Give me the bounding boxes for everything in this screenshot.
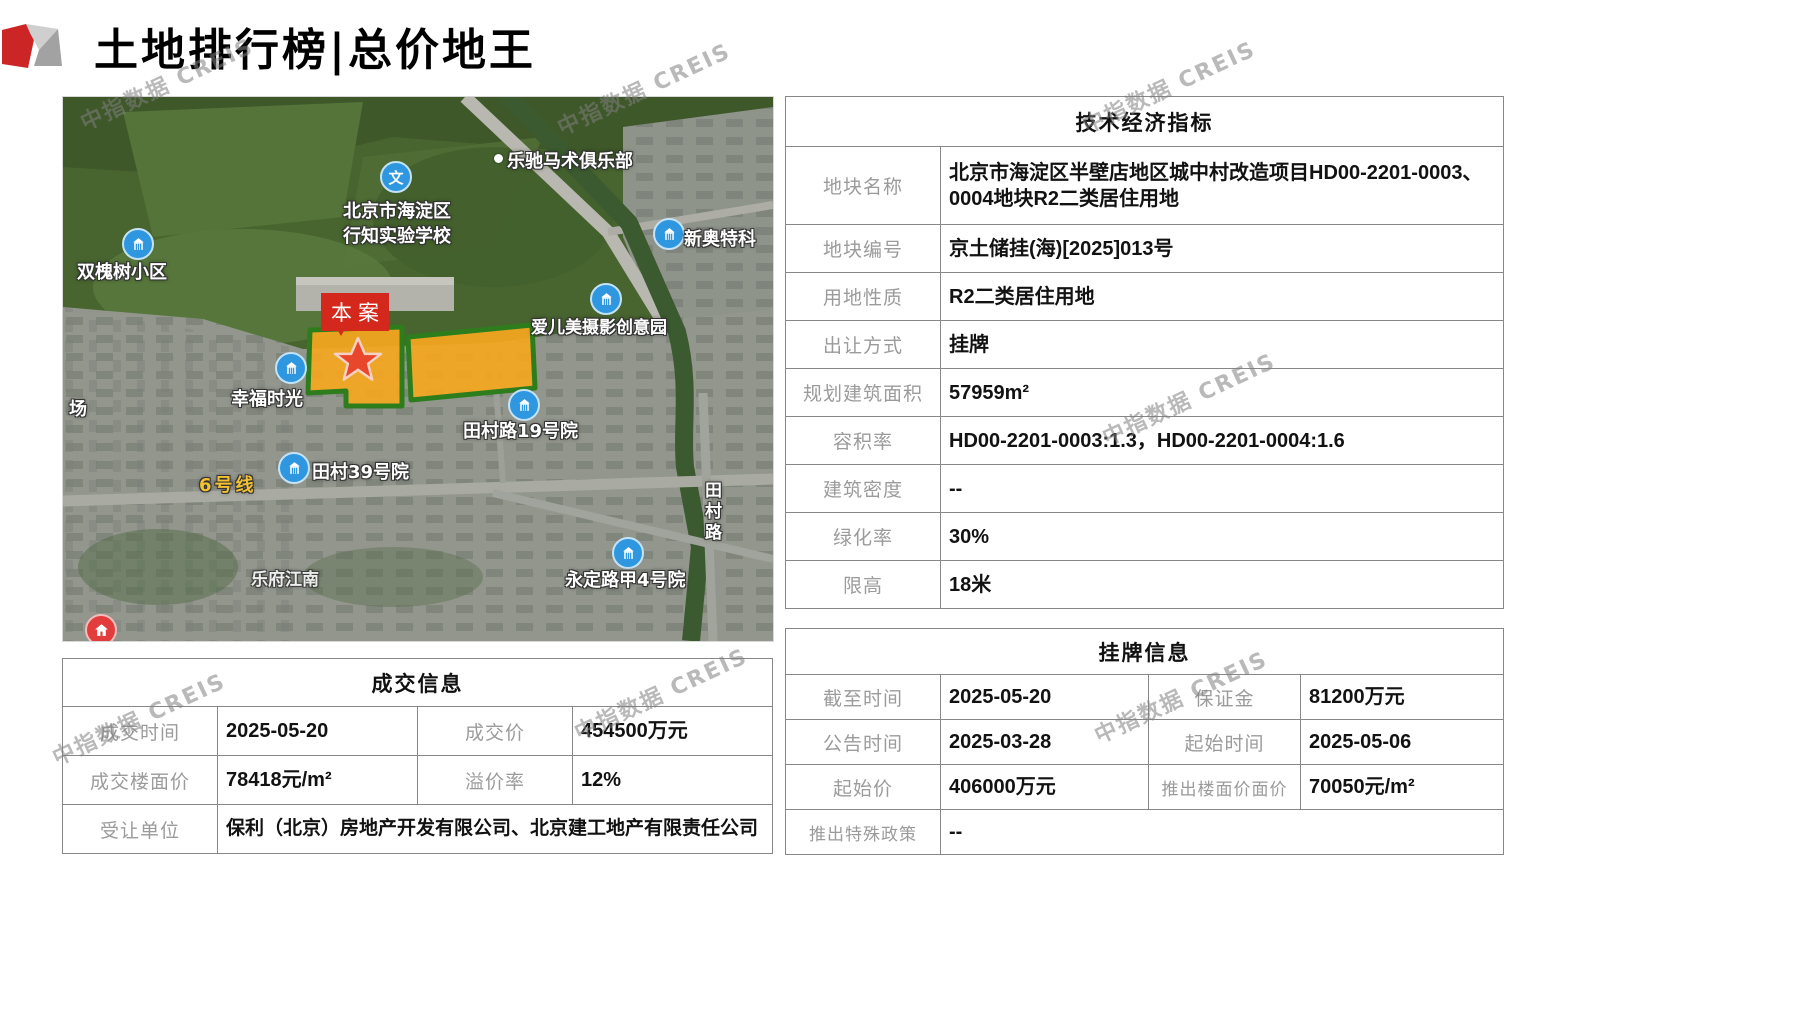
special-policy-label: 推出特殊政策 <box>786 810 941 855</box>
height-limit-label: 限高 <box>786 561 941 609</box>
plot-ratio-value: HD00-2201-0003:1.3，HD00-2201-0004:1.6 <box>941 417 1504 465</box>
announce-time-label: 公告时间 <box>786 720 941 765</box>
residence-icon-xingfu <box>275 352 307 384</box>
map-label-tiancunlu: 田村路 <box>699 481 724 544</box>
map-label-xingfu: 幸福时光 <box>231 385 303 411</box>
announce-time-value: 2025-03-28 <box>941 720 1149 765</box>
residence-icon-tiancun39 <box>278 452 310 484</box>
map-label-chang: 场 <box>69 395 87 421</box>
start-time-label: 起始时间 <box>1149 720 1301 765</box>
green-ratio-label: 绿化率 <box>786 513 941 561</box>
transfer-method-value: 挂牌 <box>941 321 1504 369</box>
map-label-school: 北京市海淀区行知实验学校 <box>335 199 459 249</box>
map-label-yongding: 永定路甲4号院 <box>565 566 686 592</box>
case-marker: 本案 <box>321 293 389 331</box>
launch-floor-price-value: 70050元/m² <box>1301 765 1504 810</box>
map-label-aiermei: 爱儿美摄影创意园 <box>531 313 667 338</box>
deal-floor-price-label: 成交楼面价 <box>63 756 218 805</box>
creis-logo <box>2 24 78 70</box>
tech-table: 技术经济指标 地块名称 北京市海淀区半壁店地区城中村改造项目HD00-2201-… <box>785 96 1504 609</box>
map-label-line6: 6号线 <box>199 471 257 497</box>
height-limit-value: 18米 <box>941 561 1504 609</box>
hospital-icon <box>85 614 117 642</box>
green-ratio-value: 30% <box>941 513 1504 561</box>
planned-area-value: 57959m² <box>941 369 1504 417</box>
deal-price-value: 454500万元 <box>573 707 773 756</box>
transferee-value: 保利（北京）房地产开发有限公司、北京建工地产有限责任公司 <box>218 805 773 854</box>
premium-rate-value: 12% <box>573 756 773 805</box>
parcel-right <box>408 325 535 400</box>
special-policy-value: -- <box>941 810 1504 855</box>
land-use-value: R2二类居住用地 <box>941 273 1504 321</box>
map-label-lefu: 乐府江南 <box>251 565 319 590</box>
residence-icon-aiermei <box>590 283 622 315</box>
plot-number-value: 京土储挂(海)[2025]013号 <box>941 225 1504 273</box>
location-map: 本案 文 乐驰马术俱乐部 北京市海淀区行知实验学校 双槐树小区 新奥特科 爱儿美… <box>62 96 774 642</box>
land-use-label: 用地性质 <box>786 273 941 321</box>
satellite-map-art <box>63 97 773 641</box>
deadline-value: 2025-05-20 <box>941 675 1149 720</box>
deal-time-value: 2025-05-20 <box>218 707 418 756</box>
transfer-method-label: 出让方式 <box>786 321 941 369</box>
planned-area-label: 规划建筑面积 <box>786 369 941 417</box>
deposit-label: 保证金 <box>1149 675 1301 720</box>
deadline-label: 截至时间 <box>786 675 941 720</box>
page-title: 土地排行榜|总价地王 <box>94 14 536 78</box>
building-density-label: 建筑密度 <box>786 465 941 513</box>
start-price-value: 406000万元 <box>941 765 1149 810</box>
listing-table: 挂牌信息 截至时间 2025-05-20 保证金 81200万元 公告时间 20… <box>785 628 1504 855</box>
start-price-label: 起始价 <box>786 765 941 810</box>
deal-price-label: 成交价 <box>418 707 573 756</box>
building-density-value: -- <box>941 465 1504 513</box>
plot-name-value: 北京市海淀区半壁店地区城中村改造项目HD00-2201-0003、0004地块R… <box>941 147 1504 225</box>
listing-table-title: 挂牌信息 <box>786 629 1504 675</box>
tech-table-title: 技术经济指标 <box>786 97 1504 147</box>
club-dot-icon <box>494 154 503 163</box>
map-label-tiancunlu19: 田村路19号院 <box>463 417 578 443</box>
plot-ratio-label: 容积率 <box>786 417 941 465</box>
residence-icon-yongding <box>612 537 644 569</box>
deal-table: 成交信息 成交时间 2025-05-20 成交价 454500万元 成交楼面价 … <box>62 658 773 854</box>
map-label-xinaote: 新奥特科 <box>684 225 756 251</box>
school-icon: 文 <box>380 161 412 193</box>
map-label-tiancun39: 田村39号院 <box>312 458 409 484</box>
map-label-shuanghuaishu: 双槐树小区 <box>77 258 167 284</box>
slide-page: 土地排行榜|总价地王 <box>0 0 1797 1010</box>
premium-rate-label: 溢价率 <box>418 756 573 805</box>
transferee-label: 受让单位 <box>63 805 218 854</box>
residence-icon-shuanghuaishu <box>122 228 154 260</box>
deal-floor-price-value: 78418元/m² <box>218 756 418 805</box>
start-time-value: 2025-05-06 <box>1301 720 1504 765</box>
map-label-club: 乐驰马术俱乐部 <box>507 147 633 173</box>
residence-icon-xinaote <box>653 218 685 250</box>
deposit-value: 81200万元 <box>1301 675 1504 720</box>
launch-floor-price-label: 推出楼面价面价 <box>1149 765 1301 810</box>
deal-table-title: 成交信息 <box>63 659 773 707</box>
plot-number-label: 地块编号 <box>786 225 941 273</box>
deal-time-label: 成交时间 <box>63 707 218 756</box>
plot-name-label: 地块名称 <box>786 147 941 225</box>
case-marker-label: 本案 <box>331 297 385 327</box>
